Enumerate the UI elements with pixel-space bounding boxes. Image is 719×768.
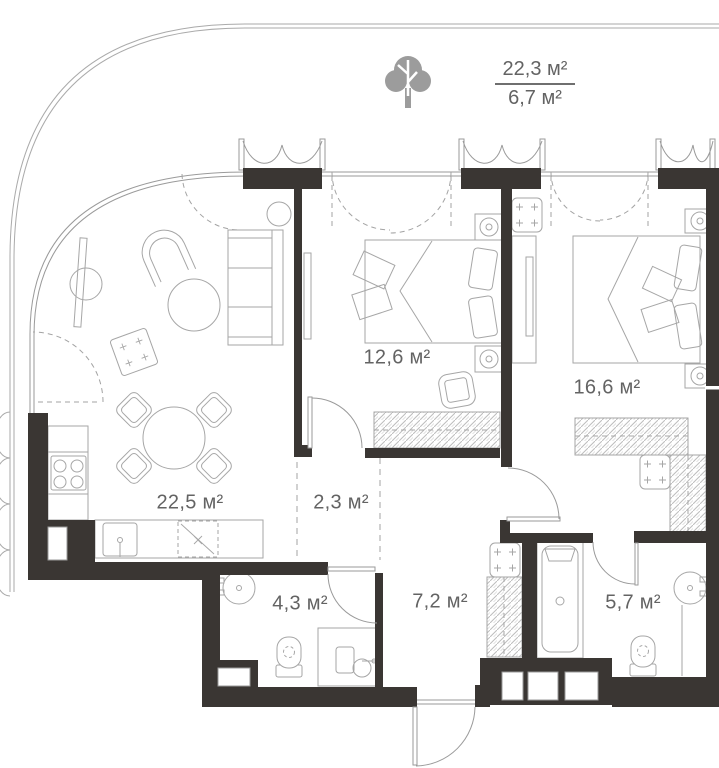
utility-panel-icon (640, 455, 670, 489)
dining-chair-icon (194, 390, 234, 430)
room-area-label-bathroom-1: 4,3 м² (272, 593, 328, 616)
bed-icon (573, 236, 702, 363)
bathtub-icon (537, 541, 583, 658)
kitchen-sink-icon (103, 523, 137, 557)
shaft-box (502, 672, 523, 700)
laundry-sink-icon (336, 647, 354, 673)
curtain-icon (656, 139, 715, 170)
side-table-icon (168, 279, 220, 331)
terrace-scallop-edge (0, 412, 10, 596)
dining-chair-icon (194, 446, 234, 486)
room-area-label-living-kitchen: 22,5 м² (157, 492, 224, 515)
shaft-box (565, 672, 598, 700)
bed-icon (352, 240, 502, 343)
dishwasher-icon (178, 521, 218, 557)
utility-panel-icon (490, 543, 520, 577)
shaft-box (48, 527, 67, 560)
wardrobe-icon (575, 418, 688, 455)
tree-icon (385, 56, 431, 108)
room-area-label-bedroom-2: 16,6 м² (574, 377, 641, 400)
toilet-icon (276, 637, 302, 677)
room-area-label-bathroom-2: 5,7 м² (605, 592, 661, 615)
room-bedroom-2 (512, 198, 714, 533)
curtain-icons (239, 139, 715, 170)
curtain-icon (459, 139, 545, 170)
toilet-icon (630, 636, 656, 676)
pouf-icon (70, 268, 102, 300)
door-bedroom-1 (308, 397, 362, 448)
bathroom-sink-icon (674, 572, 707, 604)
dining-chair-icon (114, 390, 154, 430)
tv-console-icon (512, 236, 536, 363)
terrace-area-total: 22,3 м² (503, 58, 568, 81)
sofa-icon (228, 230, 283, 345)
stove-icon (51, 456, 86, 490)
door-bedroom-2 (507, 468, 560, 521)
wall-joint (705, 386, 719, 390)
armchair-icon (135, 223, 196, 287)
dining-table-icon (143, 407, 205, 469)
nightstand-icon (475, 214, 502, 240)
washing-machine-icon (353, 659, 371, 677)
curtain-icon (239, 139, 325, 170)
utility-panel-icon (512, 198, 542, 232)
tv-icon (304, 253, 311, 339)
floor-plan: 22,3 м² 6,7 м² 22,5 м² 2,3 м² 12,6 м² 16… (0, 0, 719, 768)
room-bedroom-1 (304, 214, 502, 448)
room-hallway (487, 543, 522, 657)
plant-icon (267, 202, 291, 226)
shaft-box (528, 672, 558, 700)
coffee-table-icon (110, 328, 159, 377)
wardrobe-icon (487, 577, 522, 657)
bedroom-chair-icon (437, 370, 476, 409)
room-area-label-bedroom-1: 12,6 м² (364, 347, 431, 370)
terrace-area-counted: 6,7 м² (508, 87, 562, 110)
bathroom-sink-icon (216, 572, 255, 604)
door-bathroom-2 (593, 542, 638, 585)
window-swing-dashes (33, 172, 648, 402)
shaft-box (218, 668, 250, 686)
entrance-door (413, 700, 475, 766)
wardrobe-icon (374, 412, 500, 448)
nightstand-icon (475, 346, 502, 372)
fraction-divider (495, 83, 575, 85)
door-bathroom-1 (328, 567, 377, 623)
tv-icon (526, 257, 533, 336)
dining-chair-icon (114, 446, 154, 486)
console-shelf-icon (74, 238, 87, 327)
terrace-area-label: 22,3 м² 6,7 м² (495, 58, 575, 110)
wardrobe-icon (670, 455, 706, 533)
laundry-counter (318, 628, 378, 686)
room-area-label-hallway: 7,2 м² (412, 591, 468, 614)
room-area-label-corridor: 2,3 м² (313, 492, 369, 515)
